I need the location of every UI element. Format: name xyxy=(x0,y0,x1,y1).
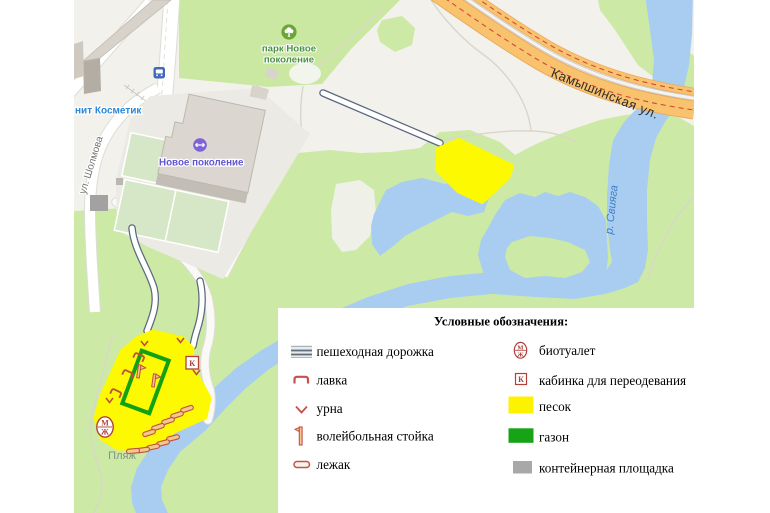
svg-text:Ж: Ж xyxy=(517,352,524,359)
svg-text:песок: песок xyxy=(539,399,572,414)
svg-text:биотуалет: биотуалет xyxy=(539,343,596,358)
svg-text:контейнерная площадка: контейнерная площадка xyxy=(539,461,674,476)
svg-text:М: М xyxy=(517,344,523,351)
svg-text:К: К xyxy=(189,358,196,368)
svg-text:парк Новое: парк Новое xyxy=(262,44,316,55)
svg-text:поколение: поколение xyxy=(264,55,314,66)
svg-text:М: М xyxy=(101,419,109,428)
svg-text:кабинка для переодевания: кабинка для переодевания xyxy=(539,373,686,388)
svg-text:Новое поколение: Новое поколение xyxy=(159,158,244,169)
svg-text:Ж: Ж xyxy=(101,428,109,437)
svg-text:К: К xyxy=(518,375,524,384)
svg-text:лежак: лежак xyxy=(317,457,351,472)
svg-text:нит Косметик: нит Косметик xyxy=(75,106,142,117)
svg-text:лавка: лавка xyxy=(317,373,348,388)
svg-text:волейбольная стойка: волейбольная стойка xyxy=(317,429,434,444)
svg-text:Условные обозначения:: Условные обозначения: xyxy=(434,315,568,329)
svg-text:Пляж: Пляж xyxy=(108,450,136,462)
svg-text:газон: газон xyxy=(539,430,569,445)
svg-text:урна: урна xyxy=(317,401,343,416)
svg-text:пешеходная дорожка: пешеходная дорожка xyxy=(317,344,435,359)
